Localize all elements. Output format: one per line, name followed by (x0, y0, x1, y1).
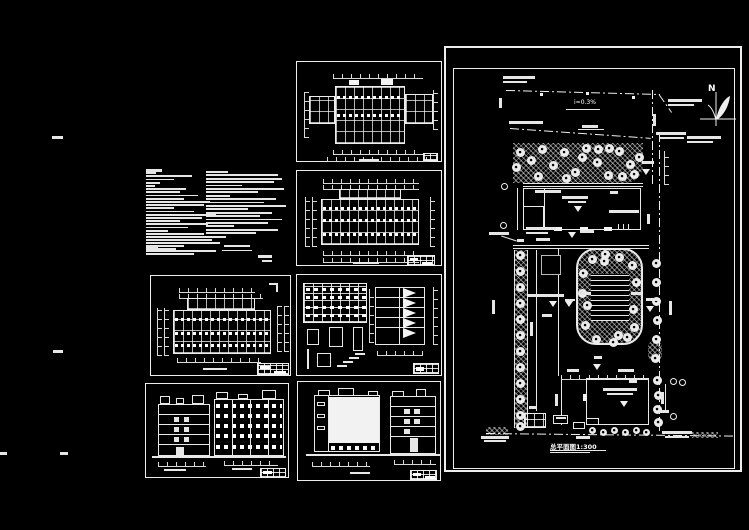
annotation-text-mark (576, 436, 590, 439)
tree-icon (611, 427, 618, 434)
stair-step-detail (349, 357, 359, 359)
notes-text-line (146, 198, 184, 200)
dimension-line (277, 306, 282, 352)
notes-text-line (146, 242, 220, 244)
title-block (407, 255, 435, 266)
annotation-text-mark (526, 227, 556, 230)
plan-upper-tier (187, 298, 255, 310)
door-window-schedule-table (303, 283, 367, 323)
building-entrance-step (583, 394, 587, 401)
playground-lanes (591, 274, 629, 321)
notes-text-line (146, 172, 156, 174)
road-edge (523, 186, 643, 187)
entrance-door (176, 447, 184, 455)
dimension-line (369, 289, 374, 343)
tree-icon (516, 395, 525, 404)
gate-house (573, 422, 585, 429)
dimension-line (430, 197, 435, 247)
annotation-text-mark (653, 114, 656, 126)
annotation-text-mark (535, 190, 561, 193)
window (414, 419, 420, 424)
sheet-floor-plan-upper (296, 170, 442, 266)
annotation-text-mark (517, 239, 524, 242)
boundary-point (586, 92, 589, 95)
tree-icon (589, 427, 596, 434)
plan-left-wing (309, 96, 335, 124)
title-block-cell (413, 473, 421, 476)
plan-detail-row (175, 318, 269, 321)
title-block (260, 468, 286, 478)
site-boundary-line (506, 90, 660, 95)
notes-text-line (146, 220, 180, 222)
tree-icon (571, 168, 580, 177)
drawing-title-mark (232, 468, 252, 470)
annotation-text-mark (556, 417, 566, 419)
notes-text-line (206, 236, 224, 238)
tree-icon (581, 321, 590, 330)
site-plan-inner: N i=0.3% (446, 48, 744, 474)
annotation-text-mark (536, 238, 550, 241)
ground-line (152, 456, 286, 458)
notes-footer-mark (224, 245, 250, 247)
floor-line (376, 297, 424, 298)
roof-parapet (216, 392, 228, 399)
notes-text-line (206, 225, 234, 227)
tree-icon (516, 379, 525, 388)
detail-drawing (329, 327, 343, 347)
level-marker-icon (565, 301, 573, 307)
stair-step-detail (355, 353, 365, 355)
tree-icon (614, 331, 623, 340)
dimension-line (177, 358, 261, 363)
annotation-text-mark (529, 406, 537, 409)
tree-icon (605, 144, 614, 153)
stray-text-mark (0, 452, 7, 455)
dimension-line (323, 179, 419, 184)
dimension-line (323, 251, 419, 256)
stray-text-mark (60, 452, 68, 455)
title-block-cell (416, 367, 424, 371)
axis-circle-marker (670, 378, 677, 385)
notes-text-line (146, 227, 188, 229)
sheet-design-notes (146, 167, 291, 263)
annotation-text-mark (489, 232, 509, 235)
roof-parapet (262, 390, 276, 399)
schedule-cells (306, 288, 366, 291)
elevation-joint-line (250, 399, 251, 456)
tree-icon (604, 171, 613, 180)
title-block (257, 363, 289, 375)
tree-icon (632, 278, 641, 287)
notes-text-line (206, 208, 248, 210)
tree-icon (538, 145, 547, 154)
window (184, 437, 189, 442)
annotation-text-mark (661, 392, 664, 404)
dimension-line (433, 287, 438, 345)
notes-footer-mark (222, 250, 252, 251)
road-edge (513, 245, 649, 246)
annotation-text-mark (668, 99, 702, 102)
level-marker-icon (574, 206, 582, 212)
schedule-cells (306, 296, 366, 299)
section-wall-line (399, 287, 400, 345)
tree-icon (653, 376, 662, 385)
notes-text-line (146, 239, 212, 241)
annotation-text-mark (503, 76, 535, 79)
site-boundary-line (652, 90, 653, 184)
level-marker-icon (568, 232, 576, 238)
level-marker-icon (642, 169, 650, 175)
tree-icon (615, 147, 624, 156)
leader-line (566, 109, 600, 110)
dimension-line (157, 308, 162, 356)
level-marker-icon (646, 306, 654, 312)
building-entrance-step (604, 227, 612, 231)
dimension-line (665, 384, 666, 412)
notes-text-line (206, 202, 264, 204)
annotation-text-mark (610, 191, 618, 194)
dimension-line (433, 90, 438, 130)
tree-icon (516, 148, 525, 157)
tree-icon (562, 174, 571, 183)
tree-icon (600, 257, 609, 266)
tree-icon (516, 267, 525, 276)
tree-icon (630, 170, 639, 179)
dimension-line (284, 306, 289, 352)
annotation-text-mark (542, 314, 552, 317)
notes-text-line (206, 219, 282, 221)
detail-drawing (317, 353, 331, 367)
window (184, 427, 189, 432)
stair-flight (403, 328, 416, 338)
notes-text-line (206, 205, 286, 207)
dimension-line (517, 188, 518, 230)
notes-text-line (206, 215, 260, 217)
tree-icon (630, 323, 639, 332)
building-stair-mark (618, 224, 619, 230)
notes-text-line (146, 204, 204, 206)
tree-icon (516, 363, 525, 372)
window (404, 429, 410, 434)
notes-text-line (146, 195, 198, 197)
notes-text-line (206, 185, 242, 187)
roof-stair-bulkhead (349, 80, 359, 85)
window (317, 414, 325, 418)
notes-text-line (146, 191, 180, 193)
dimension-line (333, 150, 423, 155)
road-edge (523, 183, 643, 184)
bike-shed (524, 413, 546, 428)
floor-line (376, 317, 424, 318)
tree-icon (583, 301, 592, 310)
annotation-text-mark (562, 196, 588, 199)
window (174, 427, 179, 432)
floor-line (376, 307, 424, 308)
annotation-text-mark (656, 132, 686, 135)
tree-icon (588, 255, 597, 264)
notes-text-line (206, 174, 278, 176)
dimension-line (561, 375, 587, 380)
tree-icon (516, 422, 525, 431)
plan-detail-row (175, 332, 269, 335)
annotation-text-mark (665, 436, 689, 438)
slope-label: i=0.3% (574, 99, 596, 106)
notes-text-line (146, 179, 174, 181)
tree-icon (549, 161, 558, 170)
title-block (410, 470, 437, 480)
dimension-line (224, 461, 278, 466)
plan-right-wing (405, 94, 433, 124)
tree-icon (615, 253, 624, 262)
notes-text-line (206, 181, 274, 183)
sheet-roof-plan (296, 61, 442, 162)
tree-icon (652, 259, 661, 268)
tree-icon (593, 158, 602, 167)
notes-text-line (146, 250, 216, 252)
notes-text-line (146, 188, 186, 190)
annotation-text-mark (631, 292, 641, 295)
title-block-cell (260, 366, 270, 369)
boundary-point (632, 96, 635, 99)
tree-icon (527, 156, 536, 165)
floor-line (391, 406, 435, 407)
annotation-text-mark (503, 81, 527, 83)
notes-footer-mark (262, 260, 272, 262)
boundary-point (540, 93, 543, 96)
window-row (216, 434, 282, 438)
leader-line (578, 129, 604, 130)
notes-text-line (206, 188, 284, 190)
floor-line (376, 327, 424, 328)
drawing-title-mark (359, 159, 379, 161)
tree-icon (534, 172, 543, 181)
dimension-line (304, 92, 309, 138)
axis-circle-marker (501, 183, 508, 190)
notes-text-line (146, 201, 210, 203)
notes-text-line (206, 232, 256, 234)
plan-detail-row (337, 96, 403, 99)
notes-text-line (146, 211, 194, 213)
stair-step-detail (343, 361, 353, 363)
tree-icon (516, 347, 525, 356)
annotation-text-mark (484, 440, 506, 442)
dimension-line (164, 308, 169, 356)
dimension-line (179, 288, 255, 293)
notes-text-line (146, 207, 174, 209)
window (317, 426, 325, 430)
floor-line (159, 414, 209, 415)
annotation-text-mark (618, 369, 634, 372)
notes-text-line (146, 223, 208, 225)
annotation-text-mark (609, 210, 639, 213)
tree-icon (600, 429, 607, 436)
cad-drawing-canvas: N i=0.3% (0, 0, 749, 530)
notes-footer-mark (258, 255, 272, 258)
title-block-cell (425, 476, 435, 479)
window (404, 419, 410, 424)
tree-icon (622, 429, 629, 436)
tree-icon (592, 335, 601, 344)
annotation-text-mark (492, 300, 495, 314)
annotation-text-mark (629, 380, 637, 383)
elevation-solid-mass (329, 397, 379, 443)
window-row (331, 446, 377, 450)
window (174, 437, 179, 442)
plan-main-block (321, 199, 419, 245)
sheet-elevations-2 (297, 381, 441, 481)
stair-step-detail (337, 365, 347, 367)
title-block-cell (274, 371, 286, 374)
floor-line (159, 424, 209, 425)
plan-detail-row (337, 114, 403, 117)
dimension-line (158, 462, 206, 467)
elevation-joint-line (268, 399, 269, 456)
floor-line (159, 444, 209, 445)
tree-icon (654, 418, 663, 427)
level-marker-icon (593, 364, 601, 370)
title-block (423, 153, 438, 161)
annotation-text-mark (481, 436, 509, 439)
building-stair-mark (623, 224, 624, 230)
plan-detail-row (323, 219, 417, 222)
dimension-line (394, 460, 436, 465)
stray-text-mark (52, 136, 63, 139)
building-2-step (586, 418, 598, 419)
title-block (413, 363, 439, 374)
tree-icon (629, 305, 638, 314)
dimension-line (377, 351, 423, 356)
annotation-text-mark (580, 230, 594, 233)
tree-icon (516, 283, 525, 292)
title-underline (550, 450, 606, 451)
window-row (216, 414, 282, 418)
drawing-title-mark (203, 368, 227, 370)
building-stair-mark (628, 224, 629, 230)
court-outline (541, 255, 561, 275)
dimension-line (664, 151, 669, 185)
floor-line (391, 436, 435, 437)
level-marker-icon (620, 401, 628, 407)
window (174, 417, 179, 422)
notes-text-line (206, 195, 230, 197)
sheet-floor-plan-ground (150, 275, 291, 376)
plan-upper-tier (339, 189, 401, 199)
annotation-text-mark (607, 393, 633, 395)
annotation-text-mark (647, 214, 650, 224)
stair-flight (403, 288, 416, 298)
annotation-text-mark (581, 292, 591, 295)
tree-icon (516, 251, 525, 260)
annotation-text-mark (509, 121, 543, 124)
notes-text-line (146, 185, 155, 187)
tree-icon (618, 172, 627, 181)
notes-text-line (206, 178, 282, 180)
detail-drawing (353, 327, 363, 351)
building-2-step (598, 418, 599, 425)
notes-text-line (146, 169, 162, 172)
window (184, 417, 189, 422)
annotation-text-mark (567, 369, 579, 372)
tree-icon (594, 145, 603, 154)
annotation-text-mark (662, 431, 692, 434)
level-marker-icon (549, 301, 557, 307)
annotation-text-mark (687, 136, 721, 139)
schedule-cells (306, 314, 366, 317)
axis-circle-marker (679, 379, 686, 386)
building-1-partition (544, 188, 545, 230)
window-row (216, 404, 282, 408)
tree-icon (512, 163, 521, 172)
tree-icon (633, 427, 640, 434)
plan-detail-row (323, 233, 417, 236)
annotation-text-mark (642, 161, 654, 164)
annotation-text-mark (530, 322, 533, 336)
dimension-line (536, 250, 537, 411)
sheet-elevations-1 (145, 383, 289, 478)
window (404, 409, 410, 414)
drawing-title-mark (164, 469, 186, 471)
floor-line (159, 434, 209, 435)
drawing-title-mark (350, 472, 370, 474)
annotation-text-mark (526, 232, 548, 234)
tree-icon (560, 148, 569, 157)
notes-text-line (206, 212, 272, 214)
stair-flight (403, 298, 416, 308)
tree-icon (628, 261, 637, 270)
annotation-text-mark (669, 301, 672, 315)
tree-icon (643, 429, 650, 436)
window (414, 409, 420, 414)
stair-section (375, 287, 425, 345)
roof-parapet (160, 396, 170, 404)
section-marker (276, 283, 278, 292)
boundary-hatch (486, 427, 508, 435)
schedule-cells (306, 306, 366, 309)
stray-text-mark (53, 350, 63, 353)
plan-detail-row (323, 207, 417, 210)
tree-icon (579, 269, 588, 278)
dimension-line (333, 74, 423, 79)
notes-text-line (206, 191, 258, 193)
drawing-title-mark (353, 262, 379, 264)
annotation-text-mark (646, 298, 658, 301)
annotation-text-mark (603, 388, 637, 391)
notes-text-line (146, 217, 202, 219)
tree-icon (516, 331, 525, 340)
annotation-text-mark (499, 98, 502, 108)
notes-text-line (146, 230, 168, 232)
stair-flight (403, 318, 416, 328)
elevation-joint-line (232, 399, 233, 456)
window-row (216, 424, 282, 428)
sheet-site-plan: N i=0.3% (444, 46, 742, 472)
notes-text-line (206, 222, 268, 224)
detail-drawing (307, 349, 309, 369)
notes-text-line (206, 198, 276, 200)
tree-icon (516, 315, 525, 324)
sheet-details-stairs (296, 274, 442, 376)
axis-circle-marker (500, 222, 507, 229)
annotation-text-mark (594, 356, 602, 359)
annotation-text-mark (687, 141, 713, 143)
dimension-line (312, 462, 370, 467)
window-row (216, 445, 282, 449)
notes-text-line (206, 171, 228, 173)
stair-flight (403, 308, 416, 318)
plan-detail-row (175, 344, 269, 347)
tree-icon (626, 160, 635, 169)
title-block-cell (263, 471, 272, 474)
